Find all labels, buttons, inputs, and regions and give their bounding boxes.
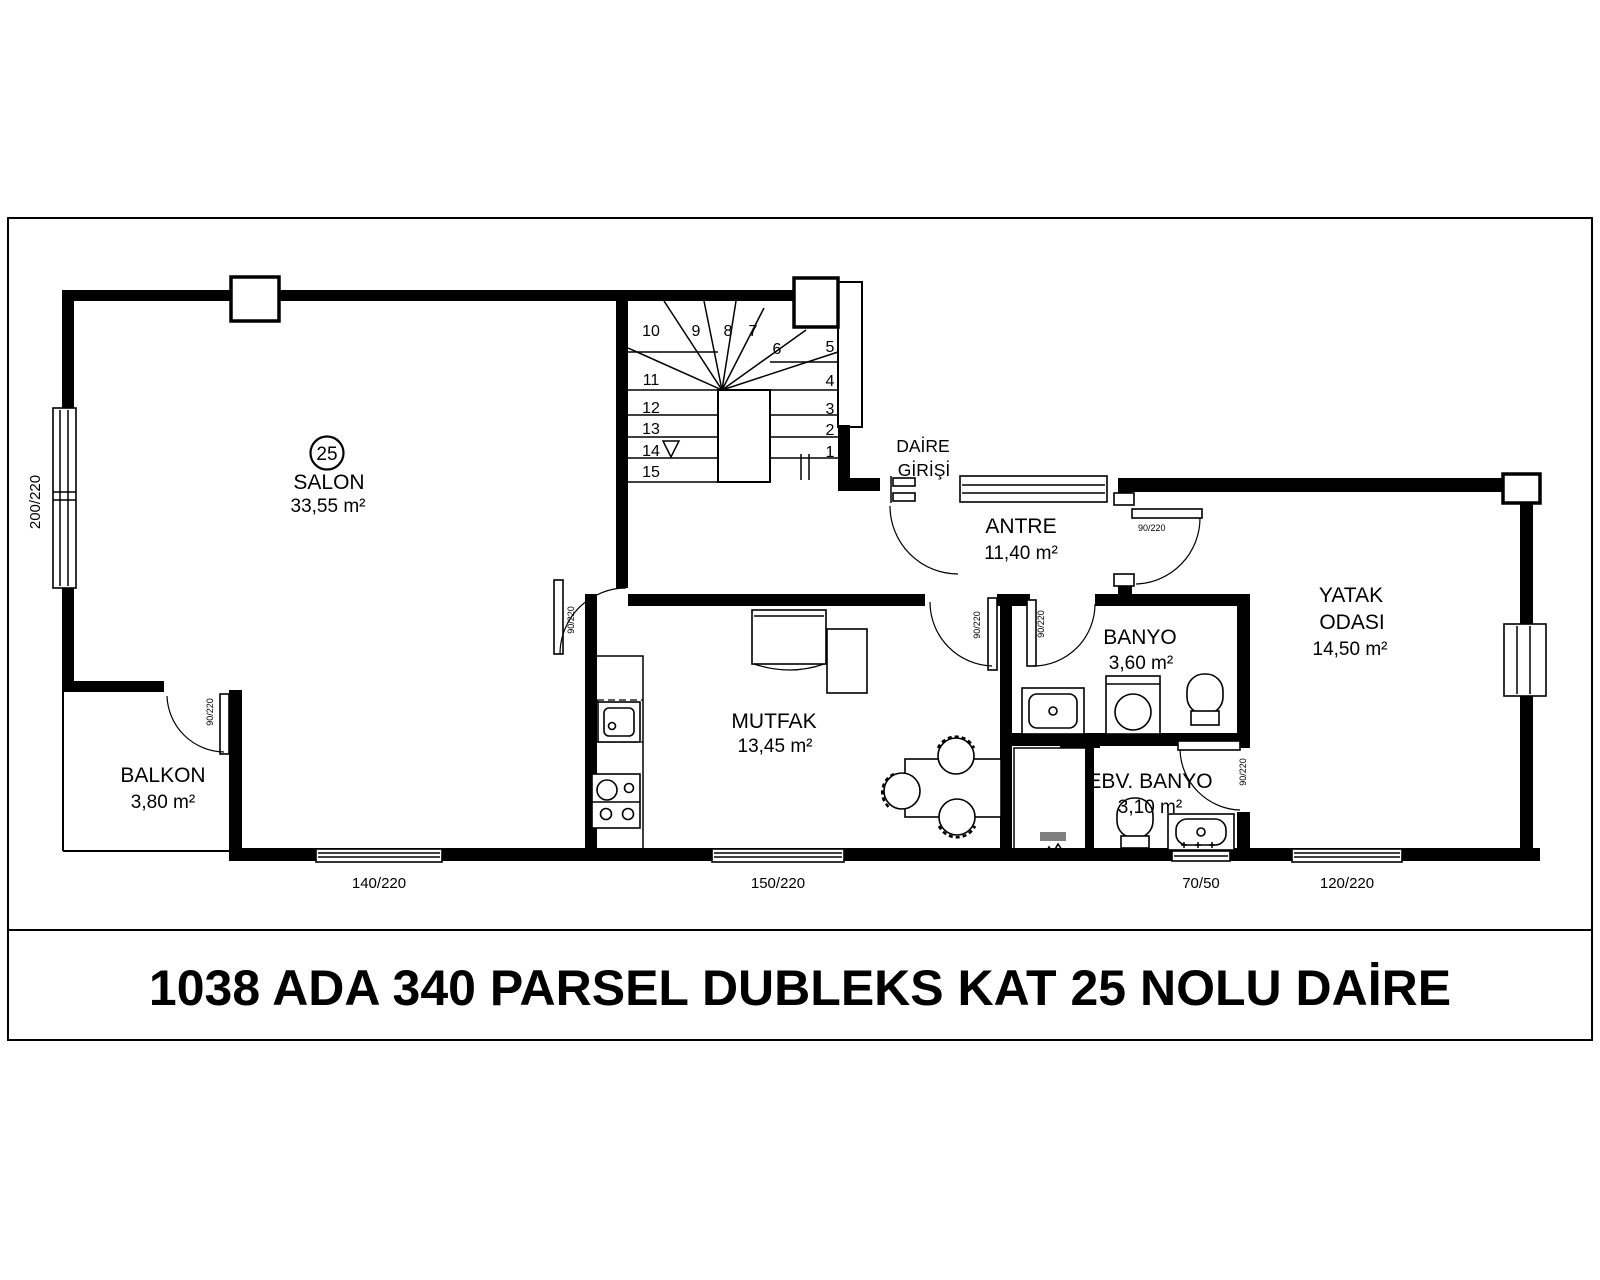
svg-text:13: 13 — [642, 421, 660, 438]
svg-text:10: 10 — [642, 323, 660, 340]
balkon-area: 3,80 m² — [131, 792, 195, 813]
salon-label: SALON — [293, 471, 364, 494]
fridge-icon — [752, 610, 826, 670]
salon-area: 33,55 m² — [291, 496, 366, 517]
column — [231, 277, 279, 321]
ebv-banyo-area: 3,10 m² — [1118, 797, 1182, 818]
svg-text:12: 12 — [642, 400, 660, 417]
window-dim-label: 120/220 — [1320, 875, 1374, 892]
banyo-label: BANYO — [1103, 626, 1177, 649]
mutfak-label: MUTFAK — [731, 710, 816, 733]
svg-text:7: 7 — [749, 323, 758, 340]
door-dim-label: 90/220 — [1238, 758, 1248, 786]
entrance-label-line1: DAİRE — [896, 436, 949, 456]
window-dim-label: 70/50 — [1182, 875, 1220, 892]
drawing-title: 1038 ADA 340 PARSEL DUBLEKS KAT 25 NOLU … — [149, 960, 1451, 1016]
antre-label: ANTRE — [985, 515, 1056, 538]
shower-drain-bar — [1040, 832, 1066, 841]
svg-text:3: 3 — [826, 401, 835, 418]
antre-area: 11,40 m² — [984, 543, 1058, 564]
unit-number: 25 — [316, 444, 337, 465]
entrance-label-line2: GİRİŞİ — [898, 460, 951, 480]
window-dim-label: 150/220 — [751, 875, 805, 892]
door-dim-label: 90/220 — [1138, 523, 1166, 533]
svg-text:5: 5 — [826, 339, 835, 356]
svg-text:8: 8 — [724, 323, 733, 340]
yatak-label-line1: YATAK — [1319, 584, 1383, 607]
door-dim-label: 90/220 — [566, 606, 576, 634]
column — [794, 278, 838, 327]
yatak-label-line2: ODASI — [1319, 611, 1384, 634]
banyo-area: 3,60 m² — [1109, 653, 1173, 674]
door-dim-label: 90/220 — [1036, 610, 1046, 638]
door-dim-label: 90/220 — [972, 611, 982, 639]
svg-text:1: 1 — [826, 444, 835, 461]
washing-machine-icon — [1106, 676, 1160, 734]
svg-text:4: 4 — [826, 373, 835, 390]
shaft — [827, 629, 867, 693]
toilet-icon — [1187, 674, 1223, 725]
door-dim-label: 90/220 — [205, 698, 215, 726]
window-dim-label: 200/220 — [27, 475, 44, 529]
svg-text:11: 11 — [643, 372, 660, 389]
svg-text:2: 2 — [826, 422, 835, 439]
stove-icon — [592, 774, 640, 828]
svg-text:9: 9 — [692, 323, 701, 340]
svg-text:15: 15 — [642, 464, 660, 481]
bathroom-sink-icon — [1022, 688, 1084, 734]
mutfak-area: 13,45 m² — [738, 736, 813, 757]
room-yatak-odasi: YATAK ODASI 14,50 m² — [1313, 584, 1388, 660]
floor-plan: 1038 ADA 340 PARSEL DUBLEKS KAT 25 NOLU … — [0, 0, 1600, 1280]
balkon-label: BALKON — [120, 764, 205, 787]
svg-text:6: 6 — [773, 341, 782, 358]
column — [1503, 474, 1540, 503]
bathroom-sink-icon — [1168, 814, 1234, 850]
ebv-banyo-label: EBV. BANYO — [1087, 770, 1212, 793]
svg-text:14: 14 — [642, 443, 660, 460]
window-dim-label: 140/220 — [352, 875, 406, 892]
yatak-area: 14,50 m² — [1313, 639, 1388, 660]
